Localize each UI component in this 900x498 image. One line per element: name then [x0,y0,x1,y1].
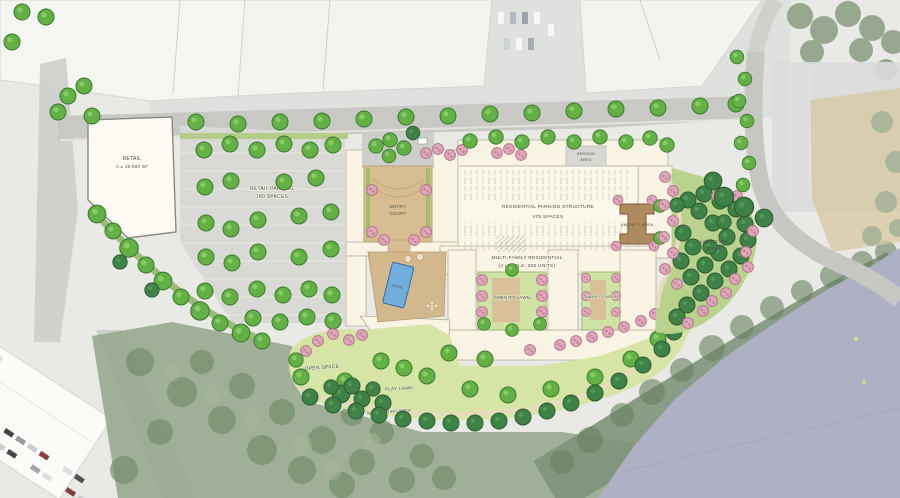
buoy [862,380,866,384]
pool-deck-table [417,254,424,261]
label-parking-structure-2: 475 SPACES [533,214,564,220]
drop-off-car [418,138,427,144]
label-amenity-lawn: AMENITY LAWN [494,295,530,300]
label-landscape-2: SLOPE [706,246,721,251]
amenity-area-courtyard: AMENITY AREA [581,272,620,330]
pool-deck-table [405,256,412,263]
label-entry-court-2: COURT [390,211,407,216]
site-plan-canvas: RETAIL PARKING 180 SPACES RETAIL A ± 19,… [0,0,900,498]
site-plan-screenshot: RETAIL PARKING 180 SPACES RETAIL A ± 19,… [0,0,900,498]
label-service-2: AREA [580,158,592,162]
label-amenity-area-east: AMENITY AREA [621,222,654,227]
label-amenity-area-court: AMENITY AREA [585,294,617,299]
label-parking-structure-1: RESIDENTIAL PARKING STRUCTURE [502,204,594,210]
label-landscape-1: LANDSCAPE [700,239,728,244]
label-retail-2: A ± 19,000 SF [116,164,148,169]
label-retail-parking-2: 180 SPACES [256,194,289,200]
label-residential-1: MULTI-FAMILY RESIDENTIAL [491,255,562,261]
entry-court: ENTRY COURT [362,126,434,252]
garage-ramp [496,236,526,252]
label-entry-court-1: ENTRY [390,204,406,209]
aerial-roof-b [238,0,492,96]
pool-courtyard: POOL [368,252,446,322]
label-service-1: SERVICE [577,152,596,156]
amenity-lawn-courtyard: AMENITY LAWN [477,264,548,337]
label-retail-1: RETAIL [123,156,142,162]
buoy [854,337,858,341]
